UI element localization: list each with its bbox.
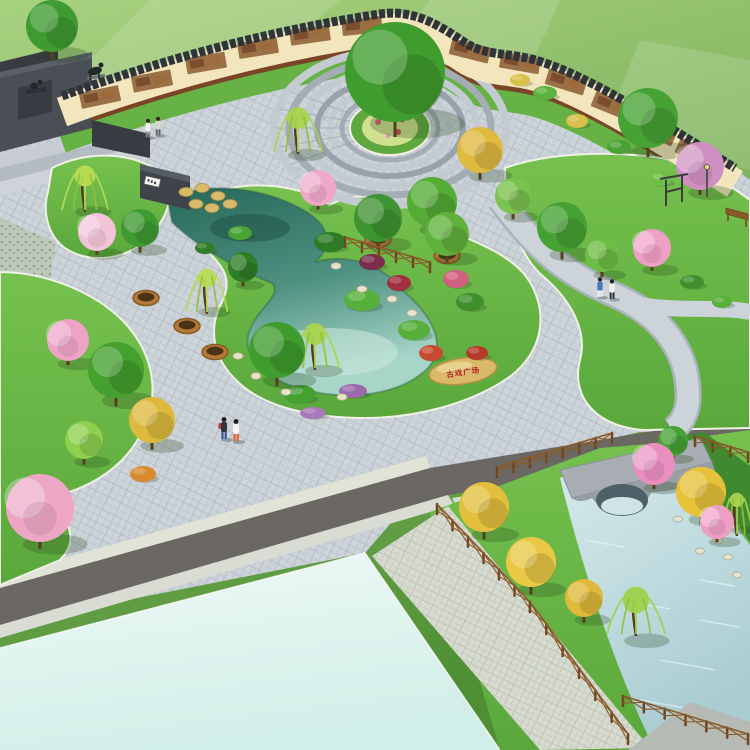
scene-canvas: 古戏广场: [0, 0, 750, 750]
rock: [233, 353, 243, 360]
person-leg: [146, 131, 148, 138]
tree-shadow: [624, 634, 670, 648]
rock: [696, 548, 705, 554]
shrub-highlight: [468, 347, 479, 353]
shrub-highlight: [342, 385, 356, 391]
person-leg: [601, 290, 603, 297]
crown-highlight: [132, 400, 157, 425]
person-torso: [597, 282, 602, 291]
rock: [281, 389, 291, 396]
person-leg: [233, 433, 235, 441]
shrub-highlight: [714, 297, 724, 302]
rock: [251, 373, 261, 380]
shrub-highlight: [317, 234, 333, 243]
shrub-highlight: [568, 115, 579, 121]
shrub-highlight: [512, 75, 522, 80]
person-torso: [155, 121, 160, 129]
person-torso: [609, 284, 614, 293]
person-head: [234, 419, 239, 424]
blossom-shade: [23, 501, 57, 535]
crown-highlight: [428, 215, 452, 239]
landscape-render: 古戏广场: [0, 0, 750, 750]
shrub-highlight: [682, 276, 694, 282]
shrub-highlight: [446, 272, 459, 280]
shrub-highlight: [421, 347, 433, 354]
shrub-highlight: [230, 227, 242, 233]
person-leg: [225, 431, 227, 439]
crown-highlight: [541, 206, 569, 234]
rock: [179, 187, 193, 196]
blossom-shade: [88, 228, 107, 247]
blossom-shade: [644, 460, 665, 481]
blossom-shade: [643, 244, 662, 263]
crown-highlight: [498, 181, 518, 201]
person-head: [610, 279, 614, 283]
person-leg: [149, 131, 151, 138]
shrub-highlight: [535, 87, 547, 93]
person-torso: [221, 422, 227, 432]
rock: [189, 199, 203, 208]
crown-highlight: [353, 30, 408, 85]
tree-shadow: [288, 149, 326, 161]
fence-cross: [644, 709, 665, 710]
rock: [211, 191, 225, 200]
shrub-highlight: [389, 277, 401, 284]
blossom-shade: [58, 336, 79, 357]
rock: [195, 183, 209, 192]
person-leg: [613, 292, 615, 299]
person-head: [156, 117, 160, 121]
crown-highlight: [411, 181, 439, 209]
person-head: [146, 119, 150, 123]
person-head: [598, 277, 602, 281]
person-leg: [598, 290, 600, 297]
person-leg: [221, 431, 223, 439]
person-torso: [145, 123, 150, 131]
planter-soil: [207, 347, 224, 356]
crown-highlight: [588, 241, 607, 260]
crown-highlight: [92, 346, 123, 377]
shrub-highlight: [609, 141, 621, 147]
fence-cross: [706, 728, 727, 729]
person-head: [222, 417, 227, 422]
crown-highlight: [30, 4, 59, 33]
rock: [357, 286, 367, 293]
fence-cross: [727, 734, 748, 735]
person-leg: [156, 129, 158, 136]
backpack: [219, 423, 222, 429]
planter-soil: [138, 293, 155, 302]
rock: [724, 554, 733, 560]
tree-shadow: [236, 281, 265, 290]
rock: [337, 394, 347, 401]
person-torso: [233, 424, 239, 434]
crown-highlight: [510, 541, 538, 569]
shrub-highlight: [303, 408, 316, 413]
shrub-highlight: [459, 295, 473, 303]
rock: [223, 199, 237, 208]
shrub-highlight: [197, 243, 207, 248]
crown-highlight: [463, 486, 491, 514]
crown-highlight: [660, 428, 677, 445]
fence-cross: [623, 702, 644, 703]
shrub-highlight: [401, 322, 417, 331]
person-leg: [237, 433, 239, 441]
crown-highlight: [124, 212, 145, 233]
rock: [387, 296, 397, 303]
crown-highlight: [623, 93, 656, 126]
crown-highlight: [680, 471, 708, 499]
crown-highlight: [568, 582, 589, 603]
crown-highlight: [230, 254, 247, 271]
rock: [733, 572, 742, 578]
rock: [205, 203, 219, 212]
tree-shadow: [199, 307, 231, 317]
shrub-highlight: [348, 291, 366, 301]
crown-highlight: [68, 424, 89, 445]
blossom-shade: [709, 519, 726, 536]
crown-highlight: [253, 326, 284, 357]
rock: [674, 516, 683, 522]
rock: [331, 263, 341, 270]
fence-cross: [686, 721, 707, 722]
blossom-shade: [309, 184, 327, 202]
shrub-highlight: [362, 256, 375, 263]
fence-cross: [665, 715, 686, 716]
crown-highlight: [460, 130, 485, 155]
person-leg: [159, 129, 161, 136]
crown-highlight: [358, 198, 384, 224]
planter-soil: [179, 321, 196, 330]
tree-shadow: [305, 365, 343, 377]
shrub-highlight: [133, 468, 146, 475]
person-leg: [610, 292, 612, 299]
rock: [407, 310, 417, 317]
